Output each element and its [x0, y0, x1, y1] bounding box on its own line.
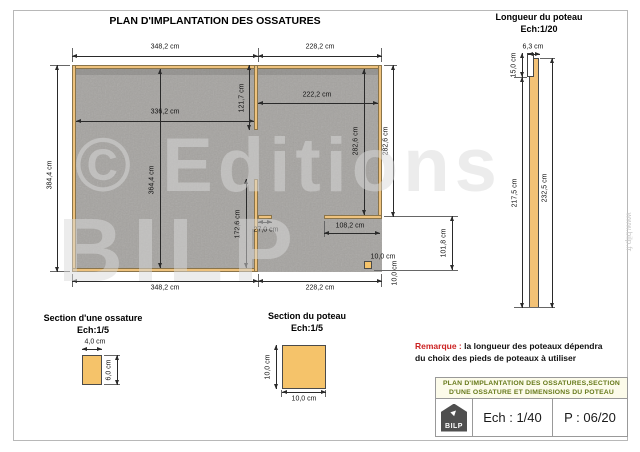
- dim-line: [249, 65, 250, 130]
- wall-segment-rear-right: [324, 215, 382, 219]
- dim-line: [258, 56, 382, 57]
- dim-label-left-height: 384,4 cm: [47, 161, 54, 190]
- dim-line: [522, 77, 523, 308]
- dim-label-post-total: 232,5 cm: [542, 174, 549, 203]
- logo-text: BILP: [441, 423, 467, 430]
- post-plan-view: [364, 261, 372, 269]
- wall-segment-left: [72, 65, 76, 272]
- dim-label-bottom-left: 348,2 cm: [151, 285, 180, 292]
- dim-line: [552, 58, 553, 308]
- scale-value: Ech : 1/40: [473, 399, 553, 436]
- dim-line: [72, 56, 258, 57]
- dim-line: [364, 69, 365, 215]
- post-section-scale: Ech:1/5: [291, 323, 323, 333]
- extension-line: [50, 65, 70, 66]
- post-section: [282, 345, 326, 389]
- dim-label-post-section-width: 10,0 cm: [292, 396, 317, 403]
- dim-line: [246, 179, 247, 268]
- dim-label-post-depth: 10,0 cm: [392, 261, 399, 286]
- post-elevation-title: Longueur du poteau: [496, 12, 583, 22]
- dim-line: [57, 65, 58, 272]
- post-elevation: [529, 58, 539, 308]
- wall-segment-middle-lower: [254, 179, 258, 272]
- dim-line: [160, 69, 161, 268]
- dim-line: [72, 281, 258, 282]
- wall-shadow: [72, 69, 382, 75]
- dim-line: [522, 53, 523, 77]
- frame-section: [82, 355, 102, 385]
- dim-label-top-left: 348,2 cm: [151, 44, 180, 51]
- post-elevation-scale: Ech:1/20: [520, 24, 557, 34]
- dim-line: [528, 54, 540, 55]
- title-block: PLAN D'IMPLANTATION DES OSSATURES,SECTIO…: [435, 377, 628, 437]
- drawing-sheet: { "sheet": { "title": "PLAN D'IMPLANTATI…: [0, 0, 640, 452]
- wall-segment-right: [378, 65, 382, 217]
- dim-label-mid-wall-lower: 172,6 cm: [235, 210, 242, 239]
- dim-line: [258, 281, 382, 282]
- dim-label-stub-wall: 27,0 cm: [254, 227, 279, 234]
- dim-label-inner-height: 364,4 cm: [149, 166, 156, 195]
- concrete-slab: [72, 65, 382, 272]
- wall-segment-top: [72, 65, 382, 69]
- title-block-body: ▲ BILP Ech : 1/40 P : 06/20: [436, 399, 627, 436]
- wall-segment-bottom-left: [72, 268, 258, 272]
- dim-label-notch: 15,0 cm: [511, 53, 518, 78]
- remark-text-line1: la longueur des poteaux dépendra: [464, 341, 602, 351]
- dim-label-right-wall: 282,6 cm: [383, 127, 390, 156]
- extension-line: [374, 270, 458, 271]
- title-block-line2: D'UNE OSSATURE ET DIMENSIONS DU POTEAU: [436, 388, 627, 397]
- dim-line: [324, 233, 380, 234]
- dim-line: [258, 103, 378, 104]
- dim-label-right-inner-height: 282,6 cm: [353, 127, 360, 156]
- dim-label-frame-width: 4,0 cm: [84, 339, 105, 346]
- dim-label-post-width: 10,0 cm: [371, 254, 396, 261]
- dim-label-right-inner-width: 222,2 cm: [303, 92, 332, 99]
- dim-line: [82, 349, 102, 350]
- dim-line: [282, 392, 326, 393]
- title-block-line1: PLAN D'IMPLANTATION DES OSSATURES,SECTIO…: [436, 379, 627, 388]
- logo-cell: ▲ BILP: [436, 399, 473, 436]
- dim-label-post-section-height: 10,0 cm: [265, 355, 272, 380]
- remark-note: Remarque : la longueur des poteaux dépen…: [415, 341, 635, 365]
- dim-label-bottom-right: 228,2 cm: [306, 285, 335, 292]
- title-block-header: PLAN D'IMPLANTATION DES OSSATURES,SECTIO…: [436, 378, 627, 399]
- dim-line: [76, 121, 254, 122]
- dim-label-post-body: 217,5 cm: [512, 179, 519, 208]
- frame-section-scale: Ech:1/5: [77, 325, 109, 335]
- page-title: PLAN D'IMPLANTATION DES OSSATURES: [109, 15, 320, 27]
- page-number: P : 06/20: [553, 399, 627, 436]
- dim-label-post-elev-width: 6,3 cm: [522, 44, 543, 51]
- dim-line: [117, 355, 118, 385]
- wall-segment-stub: [258, 215, 272, 219]
- dim-label-top-right: 228,2 cm: [306, 44, 335, 51]
- remark-text-line2: du choix des pieds de poteaux à utiliser: [415, 353, 576, 363]
- dim-line: [258, 222, 272, 223]
- dim-line: [276, 345, 277, 389]
- post-notch: [527, 53, 534, 77]
- dim-label-frame-height: 6,0 cm: [106, 359, 113, 380]
- dim-label-inner-width: 336,2 cm: [151, 109, 180, 116]
- dim-label-opening: 101,8 cm: [441, 229, 448, 258]
- dim-label-mid-wall-upper: 121,7 cm: [239, 84, 246, 113]
- extension-line: [384, 216, 458, 217]
- dim-label-rear-wall: 108,2 cm: [336, 223, 365, 230]
- remark-label: Remarque :: [415, 341, 462, 351]
- dim-line: [393, 65, 394, 217]
- post-section-title: Section du poteau: [268, 311, 346, 321]
- extension-line: [50, 271, 70, 272]
- watermark-site: www.bilp.fr: [625, 213, 634, 252]
- wall-segment-middle-upper: [254, 65, 258, 130]
- logo-arrow-icon: ▲: [448, 406, 461, 419]
- bilp-logo: ▲ BILP: [441, 404, 467, 432]
- frame-section-title: Section d'une ossature: [44, 313, 143, 323]
- dim-line: [452, 216, 453, 270]
